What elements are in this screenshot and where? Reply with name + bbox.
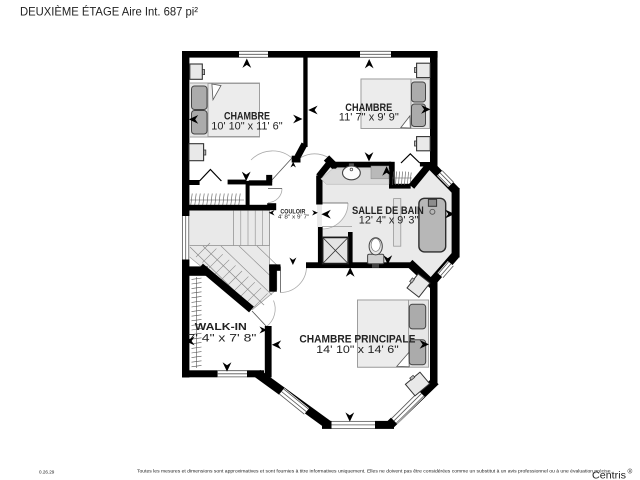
svg-text:DEUXIÈME ÉTAGE Aire Int. 687 p: DEUXIÈME ÉTAGE Aire Int. 687 pi²: [20, 4, 198, 19]
svg-text:7' 4" x 7' 8": 7' 4" x 7' 8": [188, 333, 257, 345]
svg-text:10' 10" x 11' 6": 10' 10" x 11' 6": [211, 121, 282, 133]
svg-text:®: ®: [628, 468, 633, 476]
svg-text:0.26.29: 0.26.29: [39, 470, 55, 475]
svg-text:Toutes les mesures et dimensio: Toutes les mesures et dimensions sont ap…: [137, 469, 612, 474]
svg-text:12' 4" x 9' 3": 12' 4" x 9' 3": [359, 214, 419, 226]
svg-text:Centris: Centris: [592, 470, 626, 480]
svg-text:11' 7" x 9' 9": 11' 7" x 9' 9": [339, 112, 399, 124]
svg-text:14' 10" x 14' 6": 14' 10" x 14' 6": [316, 344, 399, 356]
svg-text:4' 8" x 9' 7": 4' 8" x 9' 7": [278, 214, 310, 220]
